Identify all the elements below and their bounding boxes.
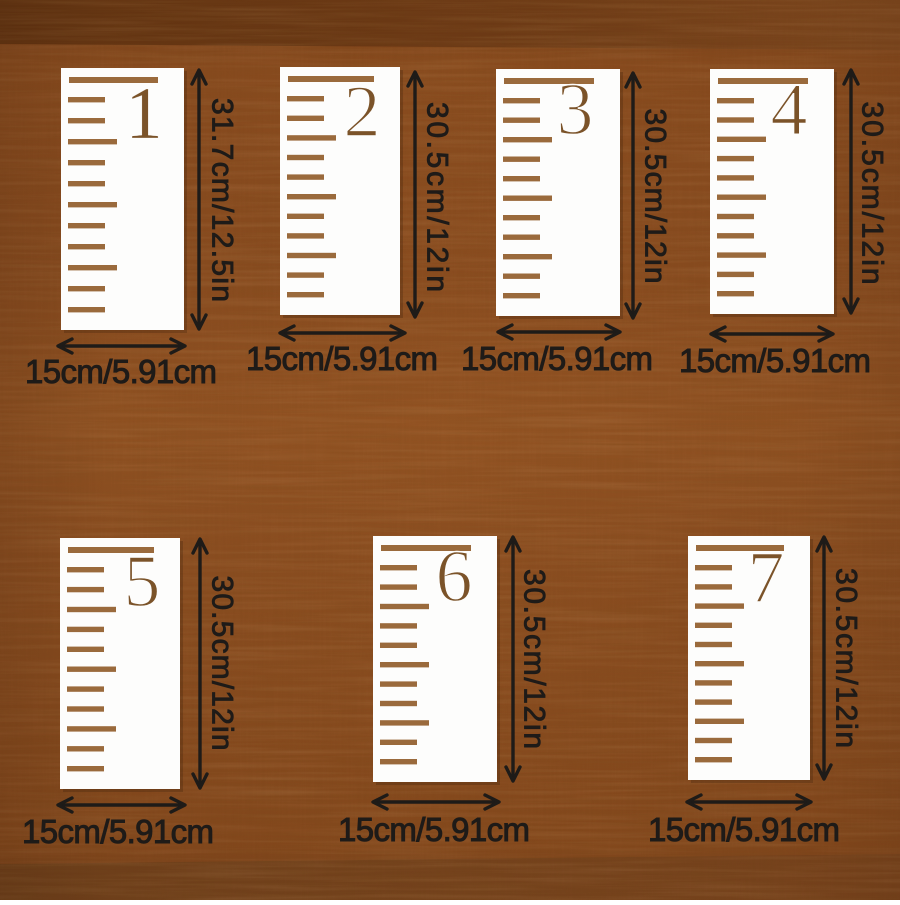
svg-text:15cm/5.91cm: 15cm/5.91cm (338, 811, 530, 848)
svg-text:15cm/5.91cm: 15cm/5.91cm (22, 813, 214, 850)
svg-text:15cm/5.91cm: 15cm/5.91cm (246, 340, 438, 377)
svg-text:15cm/5.91cm: 15cm/5.91cm (25, 353, 217, 390)
svg-text:2: 2 (344, 71, 381, 153)
svg-text:30.5cm/12in: 30.5cm/12in (830, 568, 863, 748)
svg-text:5: 5 (124, 541, 161, 623)
svg-text:7: 7 (748, 537, 785, 619)
svg-text:3: 3 (557, 69, 594, 151)
svg-text:15cm/5.91cm: 15cm/5.91cm (679, 342, 871, 379)
svg-text:30.5cm/12in: 30.5cm/12in (518, 569, 551, 749)
svg-text:4: 4 (771, 69, 808, 151)
svg-text:31.7cm/12.5in: 31.7cm/12.5in (206, 98, 239, 302)
svg-text:15cm/5.91cm: 15cm/5.91cm (461, 340, 653, 377)
svg-text:6: 6 (436, 536, 473, 618)
svg-text:30.5cm/12in: 30.5cm/12in (856, 102, 889, 285)
svg-text:30.5cm/12in: 30.5cm/12in (206, 576, 239, 751)
svg-text:1: 1 (126, 73, 163, 155)
svg-text:15cm/5.91cm: 15cm/5.91cm (648, 811, 840, 848)
svg-text:30.5cm/12in: 30.5cm/12in (639, 109, 672, 284)
